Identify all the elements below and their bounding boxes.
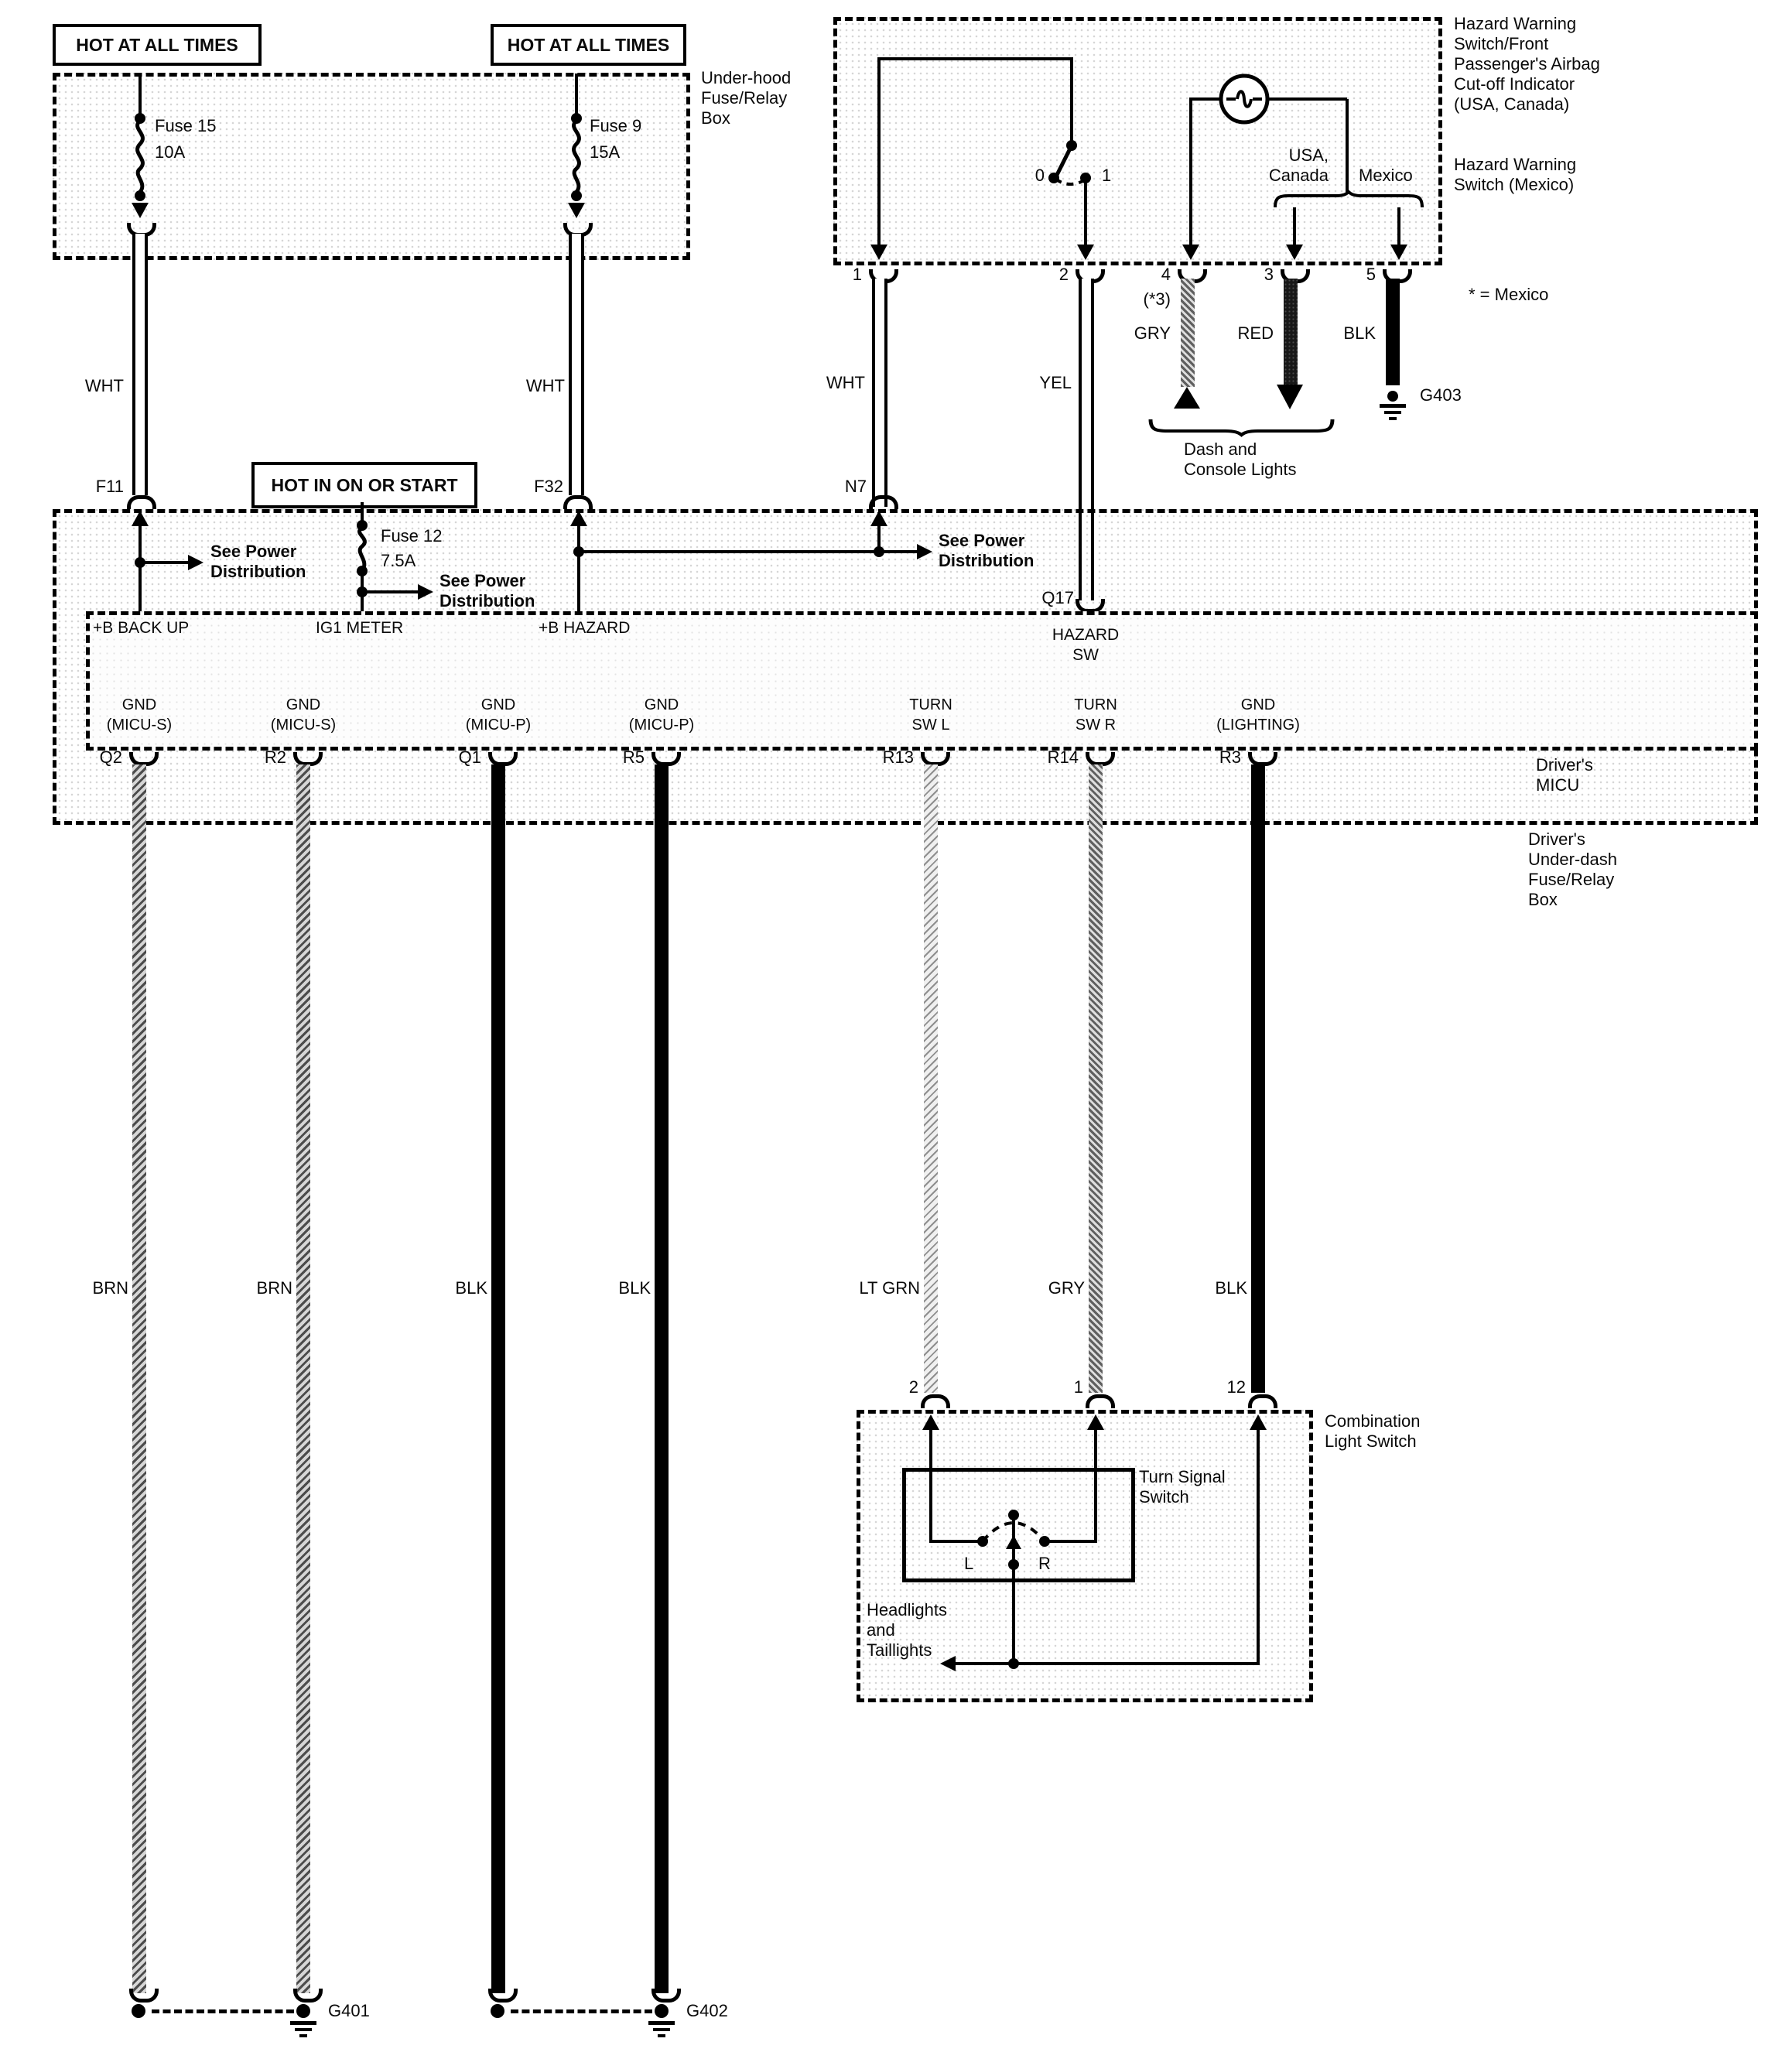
- wire-color-red: RED: [1238, 323, 1274, 344]
- splice-dot: [491, 2004, 504, 2018]
- hot-label-2: HOT AT ALL TIMES: [508, 35, 670, 56]
- micu-out-7-line1: GND: [1192, 695, 1324, 715]
- connector-icon: [293, 1989, 323, 2003]
- wire-label-brn-2: BRN: [257, 1278, 292, 1298]
- hot-at-all-times-box-2: HOT AT ALL TIMES: [491, 24, 686, 66]
- wire-wht-hazard1: [872, 279, 887, 507]
- connector-icon: [129, 1989, 159, 2003]
- headlights-label-line3: Taillights: [867, 1640, 932, 1661]
- see-power-line-2: [362, 590, 418, 593]
- see-power-2-line1: See Power: [439, 571, 525, 591]
- fuse12-rating: 7.5A: [381, 551, 416, 571]
- brace-icon: [1151, 419, 1332, 435]
- mexico-label: Mexico: [1359, 166, 1413, 186]
- arrow-up-icon: [132, 511, 149, 526]
- fuse9-rating: 15A: [590, 142, 620, 162]
- wire-brn-q2: [132, 764, 146, 1993]
- arrow-left-icon: [940, 1656, 956, 1671]
- ground-bar: [295, 2028, 312, 2031]
- underdash-label-line3: Fuse/Relay: [1528, 870, 1614, 890]
- triangle-up-icon: [1174, 387, 1200, 409]
- micu-out-4-line2: (MICU-P): [596, 715, 727, 735]
- junction-dot: [874, 546, 884, 557]
- ground-bar: [648, 2021, 675, 2025]
- micu-out-7-line2: (LIGHTING): [1192, 715, 1324, 735]
- hazard-label1-line3: Passenger's Airbag: [1454, 54, 1600, 74]
- switch-throw-arc-icon: [1048, 174, 1095, 191]
- fuse9-lead: [575, 74, 578, 117]
- arrow-up-icon: [1006, 1535, 1021, 1549]
- underhood-box-label-line1: Under-hood: [701, 68, 791, 88]
- wire-color-gry: GRY: [1134, 323, 1171, 344]
- arrow-down-icon: [1182, 245, 1199, 260]
- mexico-drop: [1397, 207, 1400, 246]
- micu-out-3-line2: (MICU-P): [433, 715, 564, 735]
- connector-icon: [1248, 1394, 1277, 1408]
- lamp-drop-right: [1346, 99, 1349, 193]
- hazard-pin4-note: (*3): [1144, 289, 1171, 310]
- wire-gry-r14: [1089, 764, 1103, 1393]
- arrow-down-icon: [1390, 245, 1407, 260]
- connector-icon: [1086, 1394, 1115, 1408]
- ground-id-g403: G403: [1420, 385, 1462, 405]
- headlights-label-line2: and: [867, 1620, 895, 1640]
- arrow-down-icon: [1277, 385, 1303, 409]
- see-power-3-line2: Distribution: [939, 551, 1034, 571]
- comb-pin-2: 2: [909, 1377, 918, 1397]
- fuse12-name: Fuse 12: [381, 526, 443, 546]
- ground-link-dashed: [152, 2009, 294, 2013]
- headlights-label-line1: Headlights: [867, 1600, 947, 1620]
- fuse15-name: Fuse 15: [155, 116, 217, 136]
- hazard-switch-right-lead: [1070, 57, 1073, 147]
- wiring-diagram: HOT AT ALL TIMES HOT AT ALL TIMES Under-…: [0, 0, 1792, 2059]
- arrow-right-icon: [188, 555, 203, 570]
- switch-output-lead: [1084, 180, 1087, 248]
- micu-out-5-line2: SW L: [865, 715, 997, 735]
- switch-pos-0: 0: [1035, 166, 1045, 186]
- fuse15-dot-bottom: [135, 190, 145, 201]
- comb-pin-1: 1: [1074, 1377, 1083, 1397]
- connector-icon: [651, 1989, 681, 2003]
- wire-blk-r5: [655, 764, 669, 1993]
- hazard-feed-line: [577, 512, 580, 611]
- ground-id-g401: G401: [328, 2001, 370, 2021]
- usa-canada-drop: [1293, 207, 1296, 246]
- wire-label-blk-3: BLK: [455, 1278, 487, 1298]
- connector-icon: [488, 1989, 518, 2003]
- wire-blk-r3: [1251, 764, 1265, 1393]
- wire-wht-f32: [569, 234, 584, 495]
- ground-bar: [290, 2021, 316, 2025]
- wire-gry-hazard4: [1181, 279, 1195, 387]
- underdash-label-line2: Under-dash: [1528, 850, 1617, 870]
- connector-id-n7: N7: [845, 477, 867, 497]
- fuse15-rating: 10A: [155, 142, 185, 162]
- ground-bar: [1380, 404, 1406, 408]
- hot-at-all-times-box-1: HOT AT ALL TIMES: [53, 24, 262, 66]
- dash-console-line2: Console Lights: [1184, 460, 1297, 480]
- arrow-down-icon: [132, 203, 149, 218]
- arrow-up-icon: [570, 511, 587, 526]
- micu-out-1-line1: GND: [74, 695, 205, 715]
- connector-icon: [563, 495, 593, 509]
- connector-id-f11: F11: [96, 477, 124, 497]
- see-power-3-line1: See Power: [939, 531, 1024, 551]
- brace-icon: [1275, 192, 1422, 207]
- hot-ign-label: HOT IN ON OR START: [271, 475, 457, 496]
- fuse9-dot-bottom: [571, 190, 582, 201]
- ground-bar: [653, 2028, 670, 2031]
- see-power-1-line2: Distribution: [210, 562, 306, 582]
- fuse12-icon: [352, 528, 372, 571]
- hazard-pin-1: 1: [853, 265, 862, 285]
- connector-id-f32: F32: [534, 477, 563, 497]
- comb-label-line1: Combination: [1325, 1411, 1421, 1431]
- asterisk-note: * = Mexico: [1469, 285, 1548, 305]
- arrow-up-icon: [1250, 1414, 1267, 1430]
- ground-bar: [658, 2034, 665, 2037]
- junction-dot: [1008, 1559, 1019, 1570]
- tss-label-line1: Turn Signal: [1139, 1467, 1226, 1487]
- n7-branch-line: [579, 550, 917, 553]
- see-power-1-line1: See Power: [210, 542, 296, 562]
- hazard-label1-line2: Switch/Front: [1454, 34, 1548, 54]
- wire-red-hazard3: [1284, 279, 1298, 385]
- arrow-right-icon: [418, 584, 433, 600]
- fuse15-lead: [139, 74, 142, 117]
- wire-ltgrn-r13: [924, 764, 938, 1393]
- underhood-box-label-line3: Box: [701, 108, 730, 128]
- ground-bar: [299, 2034, 307, 2037]
- micu-pin-hazardsw-line1: HAZARD: [1039, 625, 1132, 645]
- arrow-up-icon: [1087, 1414, 1104, 1430]
- micu-out-5-line1: TURN: [865, 695, 997, 715]
- arrow-up-icon: [870, 511, 887, 526]
- micu-pin-ig1: IG1 METER: [316, 618, 403, 638]
- wire-blk-q1: [491, 764, 505, 1993]
- connector-id-q2: Q2: [100, 747, 122, 768]
- connector-id-r13: R13: [883, 747, 914, 768]
- comb-label-line2: Light Switch: [1325, 1431, 1417, 1452]
- wire-color-blk-5: BLK: [1343, 323, 1376, 344]
- switch-pos-1: 1: [1102, 166, 1111, 186]
- hazard-switch-left-lead: [877, 59, 881, 248]
- micu-out-6-line1: TURN: [1030, 695, 1161, 715]
- micu-pin-backup: +B BACK UP: [93, 618, 189, 638]
- wire-blk-hazard5: [1386, 279, 1400, 385]
- ground-icon: [655, 2004, 669, 2018]
- micu-label-line2: MICU: [1536, 775, 1579, 795]
- tss-label-line2: Switch: [1139, 1487, 1189, 1507]
- arrow-down-icon: [568, 203, 585, 218]
- wire-label-blk-4: BLK: [618, 1278, 651, 1298]
- wire-color-wht-2: WHT: [526, 376, 565, 396]
- hazard-pin-4: 4: [1161, 265, 1171, 285]
- wire-label-brn-1: BRN: [93, 1278, 128, 1298]
- wire-color-wht-1: WHT: [85, 376, 124, 396]
- hazard-label1-line1: Hazard Warning: [1454, 14, 1576, 34]
- hazard-label2-line1: Hazard Warning: [1454, 155, 1576, 175]
- micu-out-4-line1: GND: [596, 695, 727, 715]
- hot-in-on-or-start-box: HOT IN ON OR START: [251, 462, 477, 508]
- underdash-label-line4: Box: [1528, 890, 1558, 910]
- comb-pin-12: 12: [1227, 1377, 1246, 1397]
- connector-icon: [921, 1394, 950, 1408]
- ground-bar: [1384, 411, 1401, 414]
- headlight-bus-line: [956, 1662, 1258, 1665]
- hazard-pin-3: 3: [1264, 265, 1274, 285]
- wire-color-wht-3: WHT: [826, 373, 865, 393]
- connector-icon: [127, 495, 156, 509]
- arrow-down-icon: [1286, 245, 1303, 260]
- ground-icon: [1387, 391, 1398, 402]
- hazard-pin-2: 2: [1059, 265, 1069, 285]
- turn-right-label: R: [1038, 1554, 1051, 1574]
- ground-bar: [1389, 417, 1397, 420]
- connector-icon: [869, 495, 898, 509]
- ground-lead: [1257, 1428, 1260, 1665]
- underdash-label-line1: Driver's: [1528, 829, 1585, 850]
- lamp-lead-left: [1189, 97, 1220, 101]
- see-power-line-1: [140, 561, 188, 564]
- lamp-lead-right: [1268, 97, 1347, 101]
- connector-id-q17: Q17: [1041, 588, 1074, 608]
- hazard-label2-line2: Switch (Mexico): [1454, 175, 1574, 195]
- hazard-switch-top-lead: [877, 57, 1073, 60]
- wire-label-blk-7: BLK: [1215, 1278, 1247, 1298]
- arrow-down-icon: [870, 245, 887, 260]
- micu-pin-hazardsw-line2: SW: [1039, 645, 1132, 665]
- arrow-down-icon: [1077, 245, 1094, 260]
- dash-console-line1: Dash and: [1184, 440, 1257, 460]
- ground-id-g402: G402: [686, 2001, 728, 2021]
- hazard-pin-5: 5: [1366, 265, 1376, 285]
- micu-label-line1: Driver's: [1536, 755, 1593, 775]
- junction-dot: [1008, 1658, 1019, 1669]
- connector-id-r5: R5: [623, 747, 645, 768]
- fuse9-icon: [566, 121, 587, 192]
- turn-left-label: L: [964, 1554, 973, 1574]
- micu-out-2-line1: GND: [238, 695, 369, 715]
- wire-brn-r2: [296, 764, 310, 1993]
- connector-id-r14: R14: [1048, 747, 1079, 768]
- connector-id-r2: R2: [265, 747, 286, 768]
- wire-label-ltgrn: LT GRN: [859, 1278, 920, 1298]
- ground-link-dashed: [511, 2009, 652, 2013]
- hazard-label1-line4: Cut-off Indicator: [1454, 74, 1575, 94]
- micu-out-6-line2: SW R: [1030, 715, 1161, 735]
- hazard-warning-switch-box: [833, 17, 1442, 265]
- wire-label-gry: GRY: [1048, 1278, 1085, 1298]
- see-power-2-line2: Distribution: [439, 591, 535, 611]
- micu-pin-hazard: +B HAZARD: [539, 618, 630, 638]
- fuse15-icon: [130, 121, 150, 192]
- lamp-drop-left: [1189, 99, 1192, 248]
- micu-out-3-line1: GND: [433, 695, 564, 715]
- fuse9-name: Fuse 9: [590, 116, 641, 136]
- indicator-lamp-icon: [1217, 72, 1271, 126]
- ground-icon: [296, 2004, 310, 2018]
- usa-canada-line2: Canada: [1269, 166, 1329, 186]
- usa-canada-line1: USA,: [1289, 145, 1329, 166]
- arrow-up-icon: [922, 1414, 939, 1430]
- micu-out-2-line2: (MICU-S): [238, 715, 369, 735]
- connector-id-q1: Q1: [459, 747, 481, 768]
- hazard-label1-line5: (USA, Canada): [1454, 94, 1569, 115]
- underhood-box-label-line2: Fuse/Relay: [701, 88, 787, 108]
- splice-dot: [132, 2004, 145, 2018]
- wire-wht-f11: [132, 234, 148, 495]
- connector-id-r3: R3: [1219, 747, 1241, 768]
- wire-color-yel: YEL: [1039, 373, 1072, 393]
- micu-out-1-line2: (MICU-S): [74, 715, 205, 735]
- hot-label-1: HOT AT ALL TIMES: [76, 35, 238, 56]
- arrow-right-icon: [917, 544, 932, 559]
